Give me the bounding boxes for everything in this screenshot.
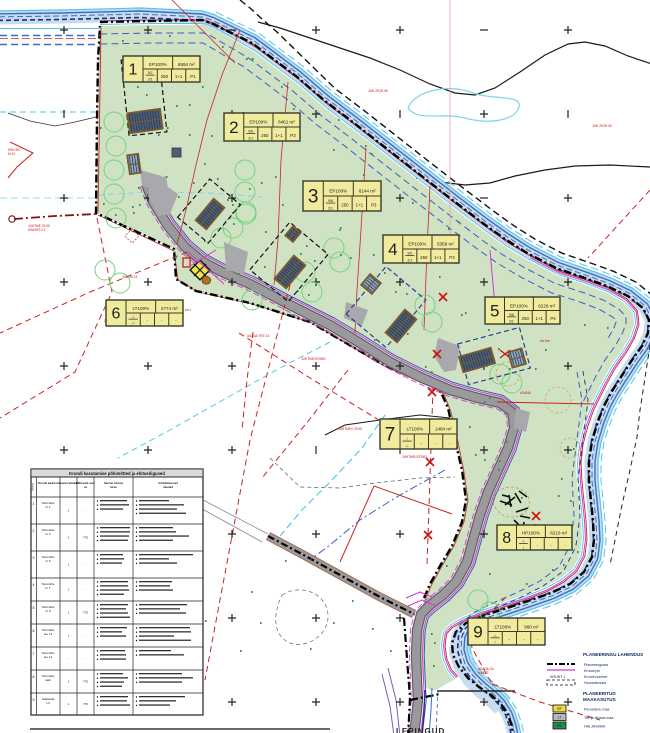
- svg-text:9: 9: [473, 622, 482, 641]
- svg-text:2: 2: [33, 529, 35, 533]
- svg-text:9: 9: [33, 698, 35, 702]
- svg-text:1+1: 1+1: [175, 74, 183, 79]
- svg-text:JUHTMEVÖÖND: JUHTMEVÖÖND: [301, 357, 326, 361]
- svg-text:JUH 29.05.06: JUH 29.05.06: [592, 124, 612, 128]
- svg-text:EP: EP: [557, 707, 562, 711]
- svg-text:Krunt: Krunt: [31, 483, 35, 490]
- svg-text:7: 7: [385, 425, 396, 446]
- svg-text:P1: P1: [190, 74, 196, 79]
- svg-text:JUH 29.05.06: JUH 29.05.06: [368, 89, 388, 93]
- svg-text:/: /: [495, 641, 496, 645]
- svg-text:1: 1: [129, 62, 138, 79]
- svg-text:2/1: 2/1: [248, 137, 253, 141]
- svg-text:3: 3: [33, 556, 35, 560]
- svg-text:tn 7: tn 7: [45, 586, 50, 590]
- svg-text:250: 250: [522, 316, 530, 321]
- svg-text:-: -: [68, 657, 69, 661]
- svg-text:9/8: 9/8: [328, 199, 333, 203]
- svg-text:JUHTMEV 29.05: JUHTMEV 29.05: [338, 427, 362, 431]
- svg-text:1+1: 1+1: [275, 133, 283, 138]
- svg-text:us: us: [84, 485, 88, 489]
- svg-text:LT: LT: [558, 716, 562, 720]
- svg-text:9/0: 9/0: [248, 130, 253, 134]
- svg-text:8: 8: [33, 675, 35, 679]
- svg-text:Planeeringuala: Planeeringuala: [584, 663, 608, 667]
- svg-text:250: 250: [261, 133, 269, 138]
- svg-text:Krundi aadress: Krundi aadress: [38, 481, 59, 485]
- svg-text:6: 6: [33, 629, 35, 633]
- svg-text:770: 770: [83, 702, 88, 706]
- svg-text:MAAKASUTUS: MAAKASUTUS: [583, 697, 616, 702]
- svg-text:/: /: [407, 437, 408, 441]
- svg-text:P4: P4: [550, 316, 556, 321]
- svg-text:Krundi kasutamise põhimõtted j: Krundi kasutamise põhimõtted ja ehitusõi…: [69, 471, 165, 476]
- svg-text:770: 770: [83, 611, 88, 615]
- svg-text:-: -: [85, 588, 86, 592]
- svg-text:P3: P3: [449, 255, 455, 260]
- svg-text:2/1: 2/1: [509, 320, 514, 324]
- svg-text:EP100%: EP100%: [510, 303, 528, 308]
- svg-text:tarve: tarve: [110, 485, 117, 489]
- svg-text:PE: PE: [557, 724, 562, 728]
- svg-text:JUHTM 24: JUHTM 24: [122, 275, 137, 279]
- svg-text:HALJASMAA: HALJASMAA: [584, 725, 606, 729]
- svg-text:6594 m²: 6594 m²: [178, 62, 195, 67]
- svg-text:770: 770: [83, 680, 88, 684]
- svg-text:6220 m²: 6220 m²: [538, 303, 555, 308]
- svg-text:2/1: 2/1: [148, 78, 153, 82]
- svg-text:9/9: 9/9: [407, 252, 412, 256]
- svg-text:mv tee: mv tee: [540, 339, 550, 343]
- svg-text:-/-: -/-: [494, 634, 497, 638]
- svg-text:ASANA TEE 24: ASANA TEE 24: [247, 334, 269, 338]
- svg-text:1+1: 1+1: [535, 316, 543, 321]
- svg-text:1484 m²: 1484 m²: [435, 426, 452, 431]
- svg-text:Tee ja tänava maa: Tee ja tänava maa: [584, 716, 613, 720]
- svg-text:2: 2: [229, 118, 238, 137]
- svg-text:tn 9: tn 9: [45, 609, 50, 613]
- svg-text:LT100%: LT100%: [132, 306, 149, 311]
- svg-text:5: 5: [490, 301, 499, 320]
- svg-text:Pereelamu maa: Pereelamu maa: [584, 708, 609, 712]
- svg-text:Hoonestusala: Hoonestusala: [584, 681, 606, 685]
- svg-text:LEPINGUD: LEPINGUD: [396, 727, 445, 733]
- svg-text:9/2: 9/2: [148, 71, 153, 75]
- svg-text:4: 4: [388, 240, 397, 259]
- svg-text:6: 6: [112, 306, 121, 323]
- svg-text:-/-: -/-: [132, 322, 135, 326]
- svg-text:250: 250: [420, 255, 428, 260]
- svg-text:HAAVT: HAAVT: [478, 671, 488, 675]
- svg-text:mv t: mv t: [185, 308, 191, 312]
- svg-text:EP100%: EP100%: [408, 242, 426, 247]
- svg-text:-: -: [85, 657, 86, 661]
- svg-text:KINNISTU 1: KINNISTU 1: [28, 228, 46, 232]
- svg-text:LT100%: LT100%: [494, 624, 511, 629]
- svg-text:EP100%: EP100%: [329, 188, 347, 193]
- svg-text:6144 m²: 6144 m²: [359, 188, 376, 193]
- svg-text:tn 5: tn 5: [45, 559, 50, 563]
- svg-text:9/8: 9/8: [509, 313, 514, 317]
- svg-text:1: 1: [33, 502, 35, 506]
- svg-text:6210 m²: 6210 m²: [550, 531, 567, 536]
- svg-text:6461 m²: 6461 m²: [278, 120, 295, 125]
- svg-text:park: park: [45, 678, 51, 682]
- svg-text:2774 m²: 2774 m²: [161, 306, 178, 311]
- svg-text:HP100%: HP100%: [522, 531, 540, 536]
- svg-text:EP100%: EP100%: [149, 62, 167, 67]
- svg-text:4: 4: [33, 583, 35, 587]
- svg-text:PLANEERITUD: PLANEERITUD: [583, 691, 616, 696]
- svg-text:5359 m²: 5359 m²: [437, 242, 454, 247]
- svg-text:tee L1: tee L1: [44, 632, 53, 636]
- svg-text:250: 250: [341, 203, 349, 208]
- svg-text:2/1: 2/1: [407, 259, 412, 263]
- svg-text:EP100%: EP100%: [249, 120, 267, 125]
- svg-text:-: -: [85, 509, 86, 513]
- svg-text:-: -: [85, 634, 86, 638]
- svg-text:Krundi number: Krundi number: [584, 675, 608, 679]
- svg-text:770: 770: [83, 536, 88, 540]
- svg-text:-/-: -/-: [522, 540, 525, 544]
- svg-text:tn 3: tn 3: [45, 532, 50, 536]
- svg-text:-: -: [85, 563, 86, 567]
- svg-text:tee L2: tee L2: [44, 655, 53, 659]
- svg-text:LT100%: LT100%: [406, 426, 423, 431]
- svg-text:P3: P3: [371, 203, 377, 208]
- svg-text:2/1: 2/1: [328, 207, 333, 211]
- svg-text:1+1: 1+1: [434, 255, 442, 260]
- svg-text:8: 8: [502, 530, 511, 547]
- svg-text:L3: L3: [46, 701, 50, 705]
- svg-text:3: 3: [308, 187, 319, 208]
- svg-text:PLANEERINGU LAHENDUS: PLANEERINGU LAHENDUS: [583, 652, 643, 657]
- svg-text:M 24: M 24: [8, 152, 15, 156]
- svg-text:250: 250: [161, 74, 169, 79]
- svg-text:tn 1: tn 1: [45, 505, 50, 509]
- svg-text:5: 5: [33, 606, 35, 610]
- svg-text:-/-: -/-: [406, 445, 409, 449]
- svg-text:-/-: -/-: [132, 315, 135, 319]
- svg-text:KRUNT 1: KRUNT 1: [550, 675, 565, 679]
- svg-text:nõuded: nõuded: [163, 485, 173, 489]
- svg-text:7: 7: [33, 652, 35, 656]
- svg-text:P3: P3: [290, 133, 296, 138]
- svg-text:1+1: 1+1: [356, 203, 364, 208]
- svg-text:ASANA: ASANA: [520, 391, 532, 395]
- svg-text:Krundi piir: Krundi piir: [584, 669, 601, 673]
- svg-text:JUHTMEVÖÖND: JUHTMEVÖÖND: [402, 455, 427, 459]
- svg-text:960 m²: 960 m²: [524, 624, 539, 629]
- svg-text:/: /: [523, 546, 524, 550]
